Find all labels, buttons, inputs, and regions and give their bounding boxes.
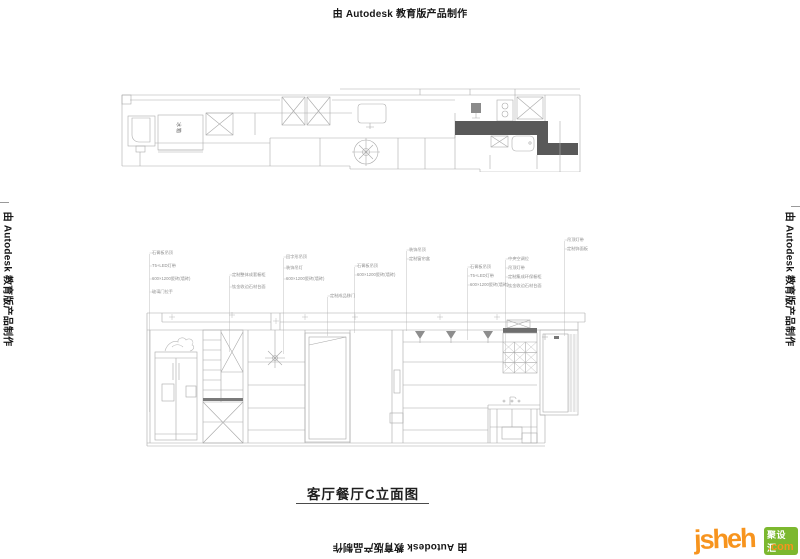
watermark-top: 由 Autodesk 教育版产品制作 xyxy=(333,5,468,20)
annotation-label: 钛金收边石材台面 xyxy=(232,285,266,289)
annotation-label: 石膏板吊顶 xyxy=(152,251,173,255)
edge-mark-left xyxy=(0,202,9,203)
edge-mark-right xyxy=(791,206,800,207)
annotation-label: 回字形吊顶 xyxy=(286,255,307,259)
annotation-label: 定制整体成套橱柜 xyxy=(232,273,266,277)
watermark-right: 由 Autodesk 教育版产品制作 xyxy=(784,212,799,347)
elevation-vent xyxy=(507,320,530,328)
annotation-label: 600×1200瓷砖(墙砖) xyxy=(470,283,508,287)
title-underline xyxy=(296,503,429,504)
logo-tld-text: .com xyxy=(768,541,794,553)
annotation-label: 吊顶灯带 xyxy=(508,266,525,270)
elevation-basin xyxy=(488,397,540,443)
annotation-label: 600×1200瓷砖(墙砖) xyxy=(357,273,395,277)
plan-stove xyxy=(352,138,380,166)
annotation-label: 玻璃门拉手 xyxy=(152,290,173,294)
floor-plan-drawing xyxy=(118,88,582,172)
watermark-left: 由 Autodesk 教育版产品制作 xyxy=(2,212,17,347)
elevation-fridge xyxy=(155,338,197,440)
jsheh-logo: jsheh 聚设汇 .com xyxy=(692,525,798,558)
annotation-label: 600×1200瓷砖(墙砖) xyxy=(286,277,324,281)
elevation-wall-lamps xyxy=(415,331,493,343)
annotation-label: 中央空调位 xyxy=(508,257,529,261)
annotation-label: 钛金收边石材台面 xyxy=(508,284,542,288)
annotation-label: T5+LED灯带 xyxy=(152,264,176,268)
elevation-wine-rack xyxy=(503,328,537,373)
annotation-label: 定制成品移门 xyxy=(330,294,355,298)
plan-cabinets xyxy=(206,97,352,135)
plan-kitchen-sink xyxy=(358,104,386,129)
elevation-right-panel xyxy=(540,322,578,443)
annotation-label: 吊顶灯带 xyxy=(567,238,584,242)
elevation-tile-wall xyxy=(403,342,537,443)
annotation-label: T5+LED灯带 xyxy=(470,274,494,278)
annotation-label: 600×1200瓷砖(墙砖) xyxy=(152,277,190,281)
annotation-label: 定制窗帘盒 xyxy=(409,257,430,261)
annotation-label: 定制饰面板 xyxy=(567,247,588,251)
fridge-label: 冰箱 xyxy=(176,122,184,134)
elevation-ceiling xyxy=(147,312,585,330)
plan-sink-left xyxy=(128,116,155,166)
plan-hood xyxy=(471,103,481,118)
elevation-jamb xyxy=(390,330,403,443)
plan-water-heater xyxy=(497,100,513,121)
annotation-label: 装饰吊灯 xyxy=(286,266,303,270)
logo-brand-text: jsheh xyxy=(693,523,755,556)
elevation-centre-wall xyxy=(248,330,350,443)
annotation-label: 石膏板吊顶 xyxy=(470,265,491,269)
annotation-label: 装饰吊顶 xyxy=(409,248,426,252)
drawing-title: 客厅餐厅C立面图 xyxy=(292,483,434,503)
plan-dark-wall xyxy=(455,121,578,155)
annotation-label: 定制集成环保橱柜 xyxy=(508,275,542,279)
watermark-bottom: 由 Autodesk 教育版产品制作 xyxy=(333,541,468,556)
elevation-sliding-door xyxy=(305,333,350,442)
annotation-label: 石膏板吊顶 xyxy=(357,264,378,268)
plan-basin xyxy=(491,136,534,151)
elevation-tall-cabinet xyxy=(203,330,243,443)
